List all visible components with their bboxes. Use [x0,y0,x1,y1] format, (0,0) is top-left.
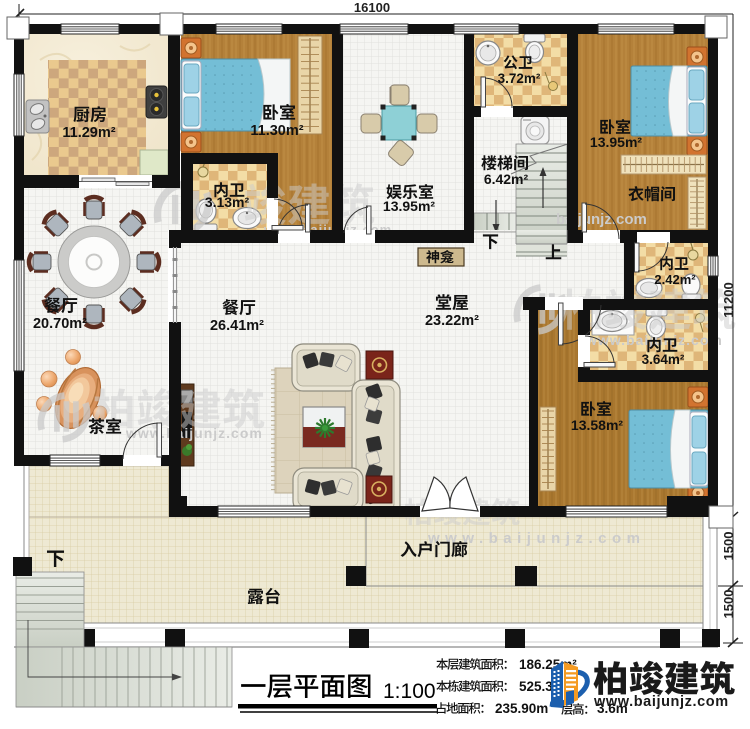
svg-text:20.70m²: 20.70m² [33,316,87,332]
svg-text:www.baijunjz.com: www.baijunjz.com [593,694,729,710]
svg-text:1:100: 1:100 [383,680,436,703]
svg-text:3.13m²: 3.13m² [205,194,250,210]
svg-text:11200: 11200 [721,282,736,317]
svg-text:www.baijunjz.com: www.baijunjz.com [125,425,263,441]
svg-text:11.29m²: 11.29m² [62,125,115,141]
svg-text:11.30m²: 11.30m² [250,123,303,139]
svg-text:1500: 1500 [721,590,736,619]
svg-text:23.22m²: 23.22m² [425,313,479,329]
svg-text:3.64m²: 3.64m² [642,352,685,367]
svg-text:13.95m²: 13.95m² [383,198,435,214]
svg-text:16100: 16100 [354,0,390,15]
svg-text:13.58m²: 13.58m² [571,417,623,433]
svg-text:3.72m²: 3.72m² [498,71,541,86]
svg-text:www.baijunjz.com: www.baijunjz.com [427,530,645,547]
svg-text:13.95m²: 13.95m² [590,134,642,150]
svg-text:1500: 1500 [721,532,736,561]
svg-text:235.90m: 235.90m [495,701,548,716]
svg-text:6.42m²: 6.42m² [484,171,529,187]
svg-text:2.42m²: 2.42m² [654,272,696,287]
svg-text:26.41m²: 26.41m² [210,318,264,334]
